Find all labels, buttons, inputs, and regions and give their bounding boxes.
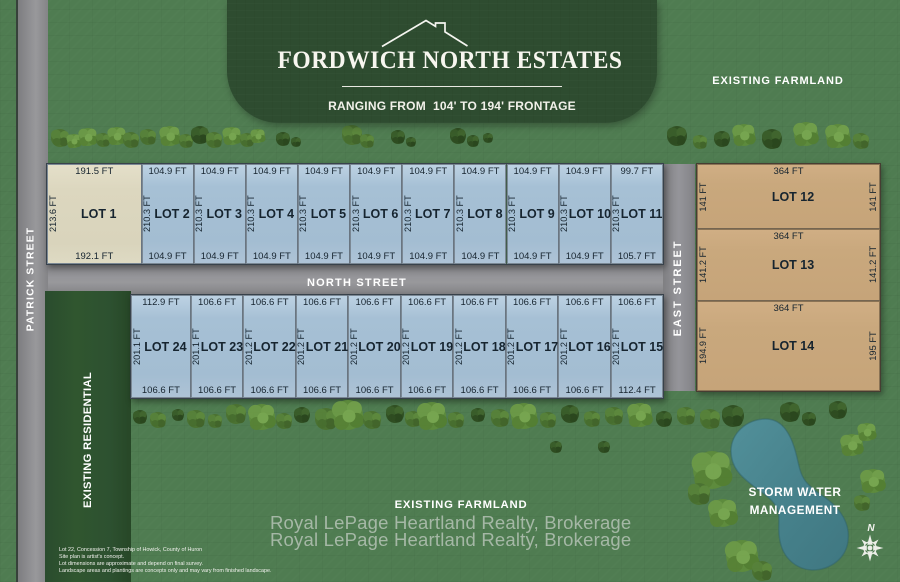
svg-text:N: N <box>867 523 875 534</box>
